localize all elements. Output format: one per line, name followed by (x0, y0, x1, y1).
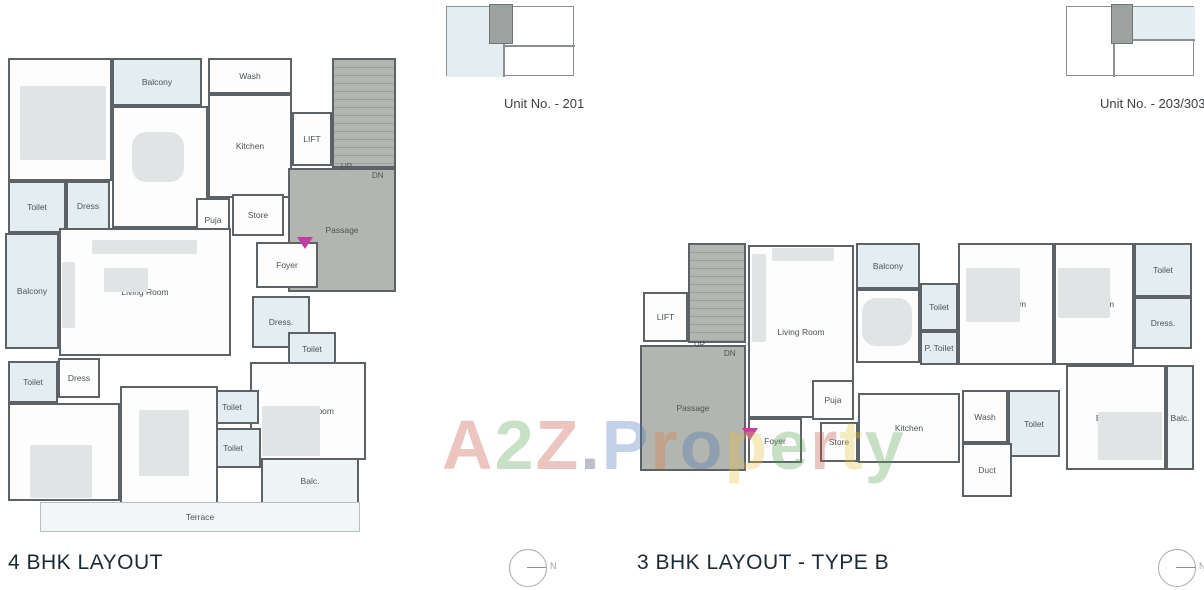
room-toilet: Toilet (920, 283, 958, 331)
key-plan-core (1111, 4, 1133, 44)
room-balc: Balc. (1166, 365, 1194, 470)
stair-direction-label: DN (724, 349, 736, 358)
room-wash: Wash (962, 390, 1008, 443)
key-plan-divider (503, 45, 575, 47)
room-foyer: Foyer (748, 418, 802, 463)
door-marker (742, 428, 758, 440)
room-label: Dress. (1136, 299, 1190, 347)
compass-north-label: N (1199, 561, 1204, 571)
room-label: Duct (964, 445, 1010, 495)
room-lift: LIFT (643, 292, 688, 342)
title-4bhk-layout: 4 BHK LAYOUT (8, 551, 163, 575)
room-label: P. Toilet (922, 333, 956, 363)
room-duct: Duct (962, 443, 1012, 497)
room-puja: Puja (812, 380, 854, 420)
compass-needle (1176, 567, 1195, 568)
compass-circle (1158, 549, 1196, 587)
room-label: Puja (814, 382, 852, 418)
room-label: Foyer (750, 420, 800, 461)
room-label: Passage (642, 347, 744, 469)
compass-icon: N (509, 549, 569, 589)
room-label: Balcony (858, 245, 918, 287)
room-toilet: Toilet (1134, 243, 1192, 297)
key-plan-core (489, 4, 513, 44)
key-plan-highlight (1131, 7, 1195, 39)
stair-direction-label: UP (694, 340, 705, 349)
plan-3bhk: LIFTPassageLiving RoomBalconyDiningToile… (0, 0, 1204, 590)
room-toilet: Toilet (1008, 390, 1060, 457)
room-balcony: Balcony (856, 243, 920, 289)
room-store: Store (820, 422, 858, 462)
unit-label-203-303: Unit No. - 203/303 (1100, 96, 1204, 111)
title-3bhk-layout: 3 BHK LAYOUT - TYPE B (637, 551, 889, 575)
unit-label-201: Unit No. - 201 (504, 96, 584, 111)
room-p-toilet: P. Toilet (920, 331, 958, 365)
room-label: Toilet (1136, 245, 1190, 295)
compass-circle (509, 549, 547, 587)
room-dress: Dress. (1134, 297, 1192, 349)
room-label: LIFT (645, 294, 686, 340)
compass-icon: N (1158, 549, 1204, 589)
key-plan-unit-201 (446, 6, 574, 76)
room-label: Wash (964, 392, 1006, 441)
room-label: Toilet (1010, 392, 1058, 455)
room-label: Balc. (1168, 367, 1192, 468)
room-kitchen: Kitchen (858, 393, 960, 463)
furniture (752, 254, 766, 342)
furniture (862, 298, 912, 346)
furniture (966, 268, 1020, 322)
room-passage: Passage (640, 345, 746, 471)
room-label: Store (822, 424, 856, 460)
room-label: Kitchen (860, 395, 958, 461)
compass-north-label: N (550, 561, 557, 571)
furniture (1058, 268, 1110, 318)
room-stairs (688, 243, 746, 343)
furniture (1098, 412, 1162, 460)
floor-plan-sheet: Bed RoomBalconyDiningWashKitchenLIFTPass… (0, 0, 1204, 590)
key-plan-unit-203-303 (1066, 6, 1194, 76)
furniture (772, 248, 834, 261)
room-label: Toilet (922, 285, 956, 329)
compass-needle (527, 567, 546, 568)
